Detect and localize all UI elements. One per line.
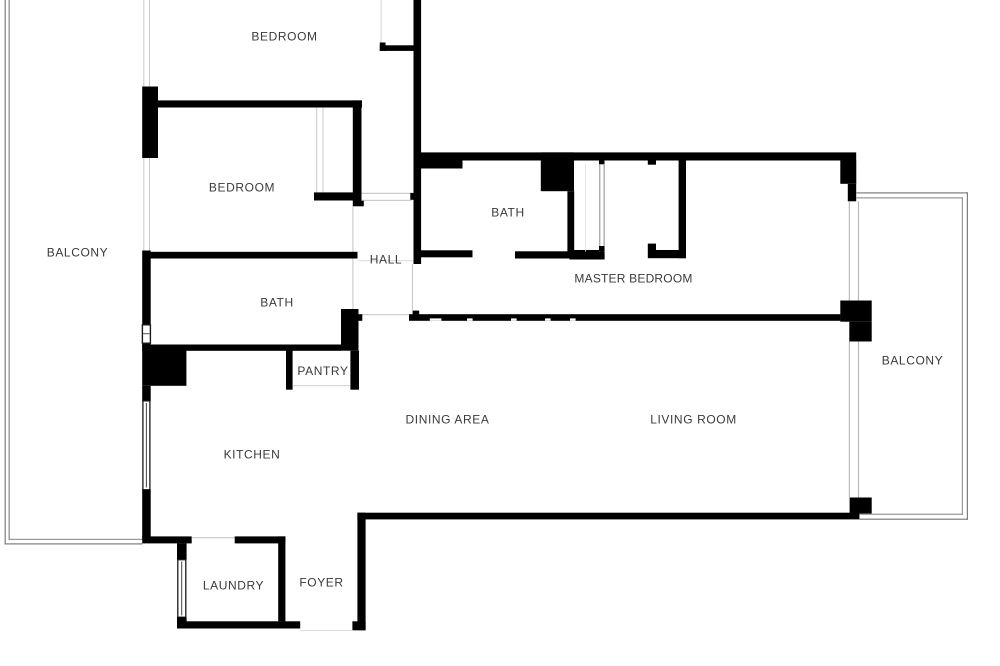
svg-text:KITCHEN: KITCHEN [224,448,281,462]
svg-text:DINING AREA: DINING AREA [406,413,490,427]
svg-text:BEDROOM: BEDROOM [251,30,317,44]
svg-text:FOYER: FOYER [299,576,343,590]
svg-text:MASTER BEDROOM: MASTER BEDROOM [574,272,692,286]
svg-text:BEDROOM: BEDROOM [209,181,275,195]
svg-text:LIVING ROOM: LIVING ROOM [650,413,737,427]
svg-text:HALL: HALL [370,253,402,267]
svg-text:LAUNDRY: LAUNDRY [203,579,264,593]
svg-text:BALCONY: BALCONY [47,246,109,260]
svg-text:BALCONY: BALCONY [882,354,944,368]
svg-text:BATH: BATH [491,206,525,220]
svg-text:BATH: BATH [260,296,294,310]
svg-text:PANTRY: PANTRY [297,364,348,378]
